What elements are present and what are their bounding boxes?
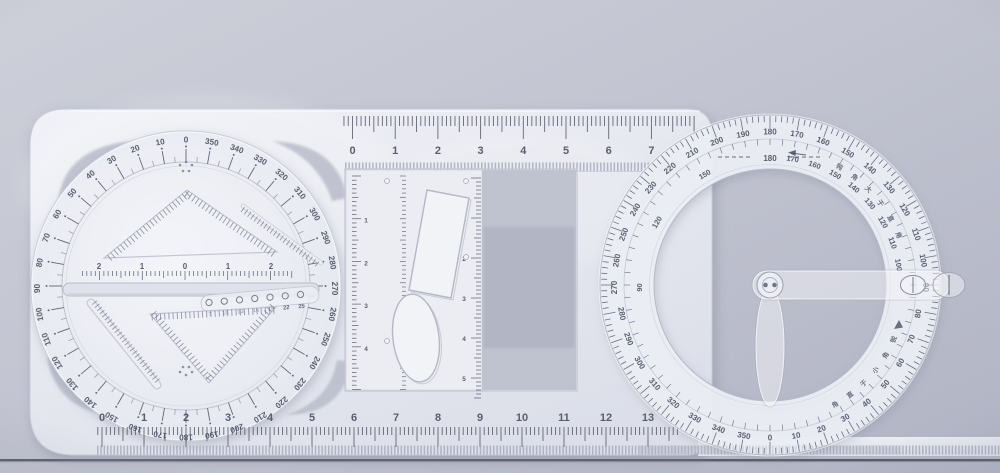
scene-svg: 0102030405060708090100110120130140150160… (0, 0, 1000, 473)
vignette (0, 0, 1000, 473)
photo-of-multifunction-drawing-ruler: 0102030405060708090100110120130140150160… (0, 0, 1000, 473)
